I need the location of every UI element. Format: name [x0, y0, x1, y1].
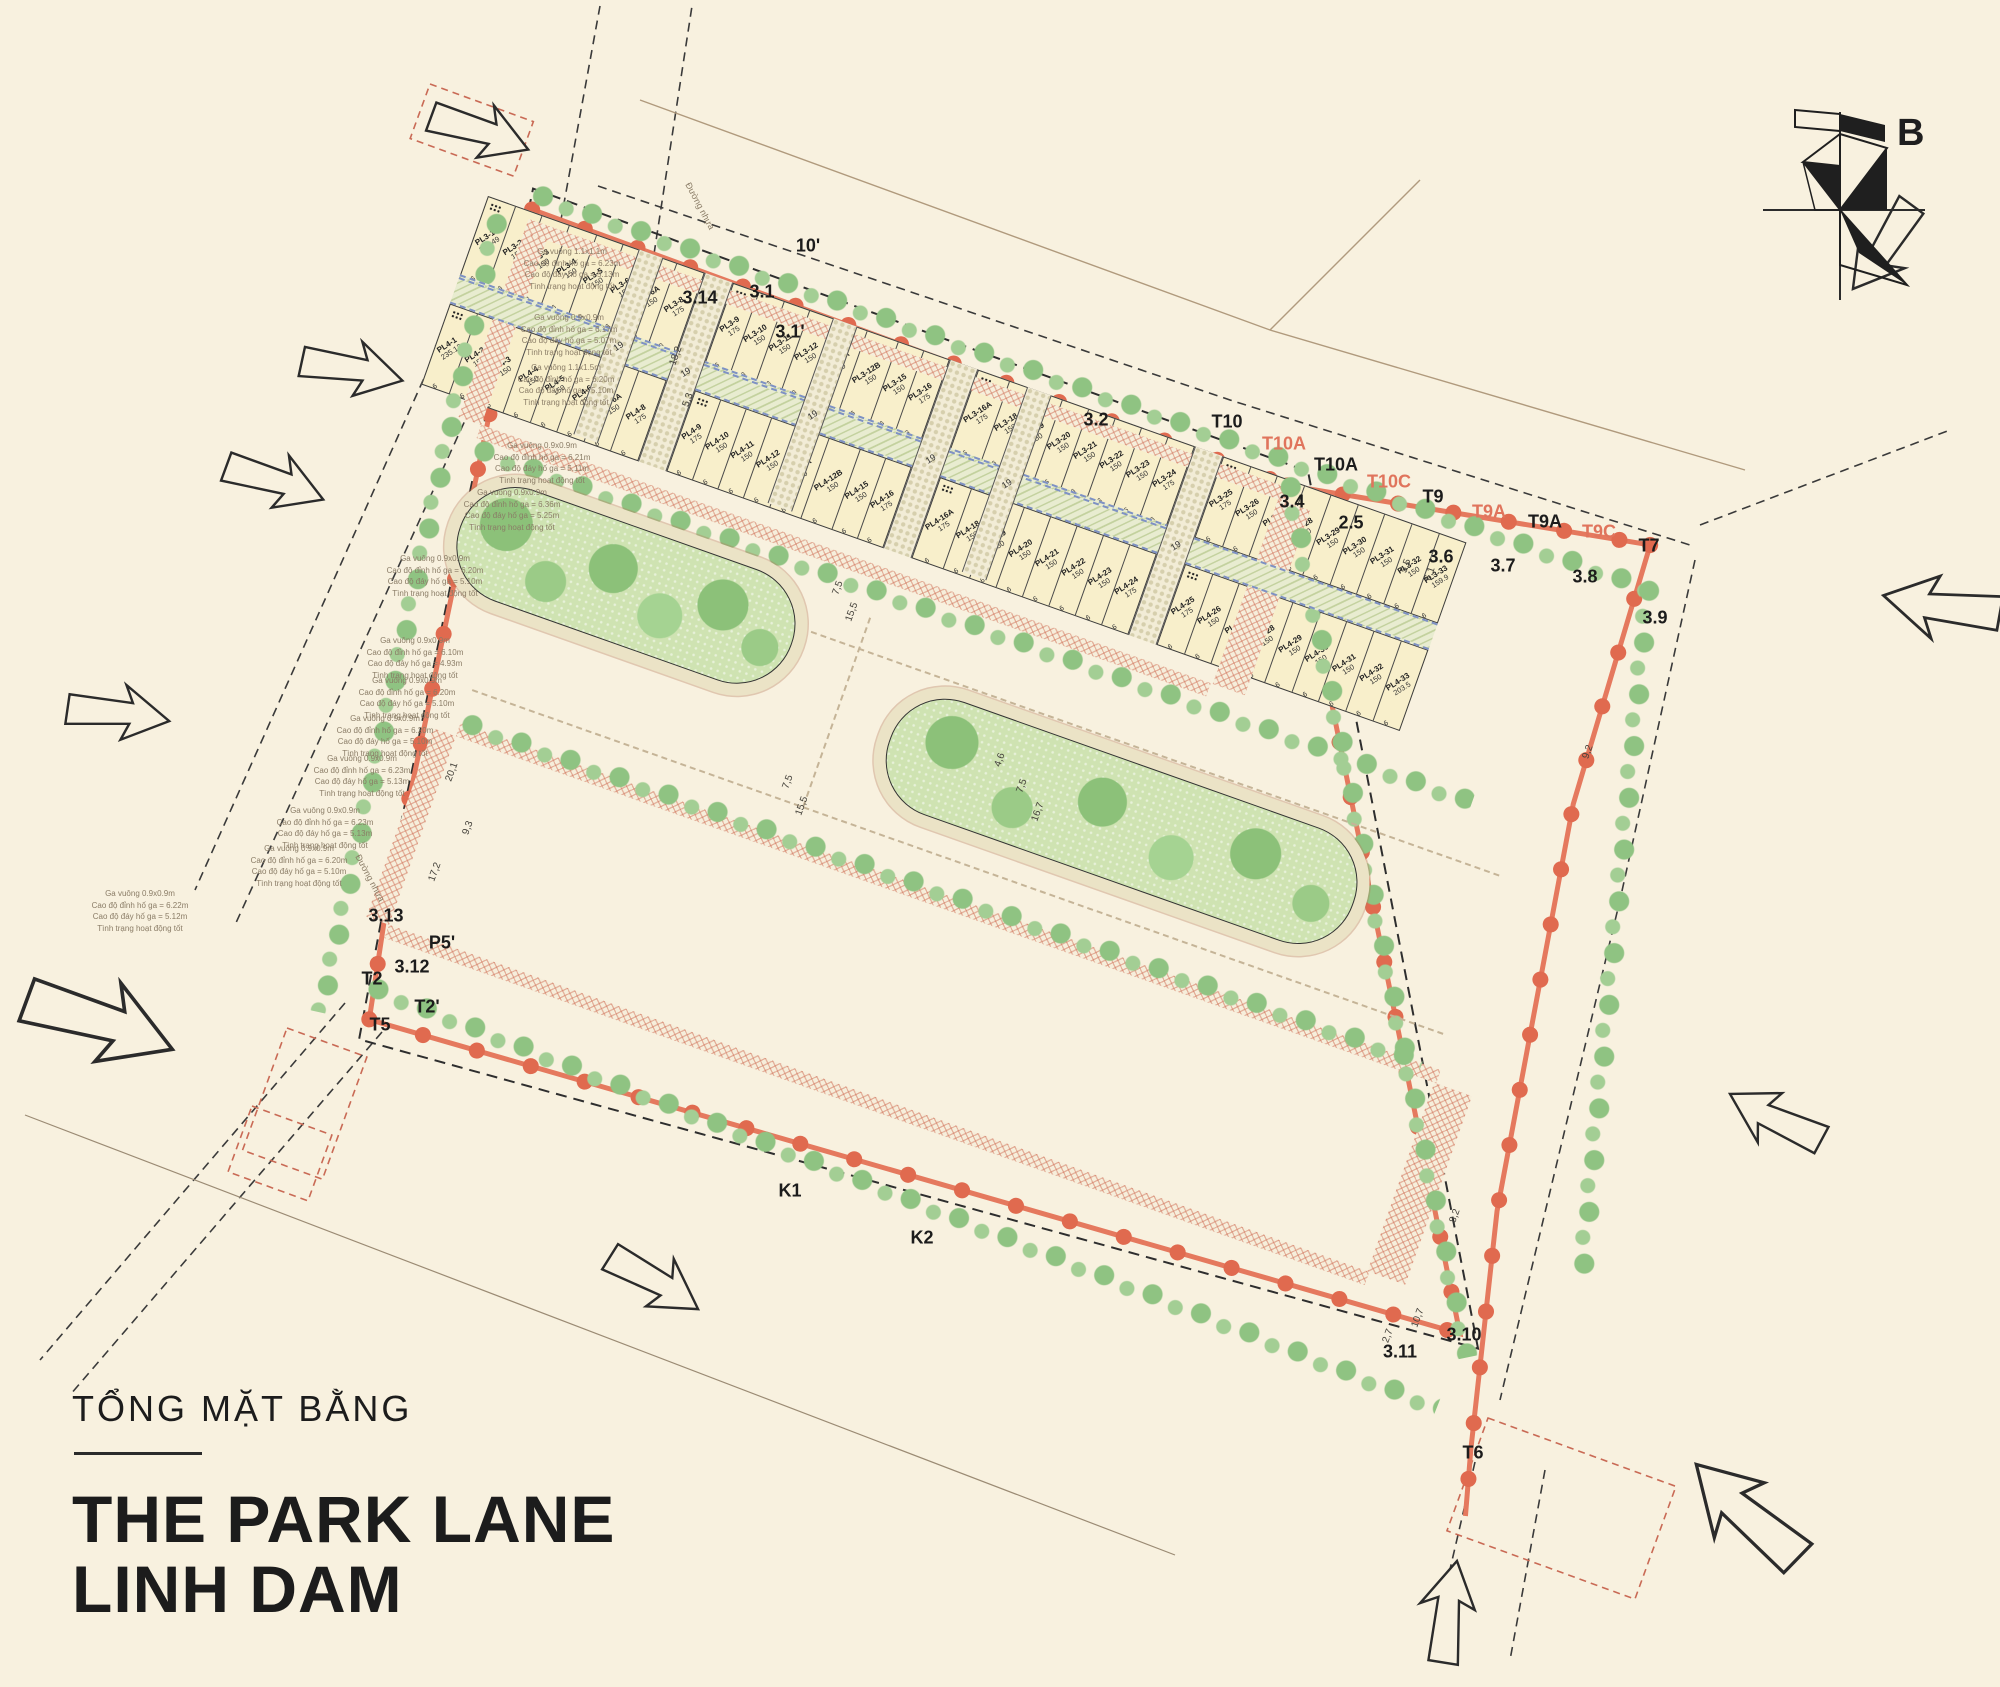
north-compass-icon: B	[1755, 100, 1945, 315]
direction-arrow	[1875, 566, 2000, 650]
alley-width-label: 19	[679, 365, 693, 379]
title-block: TỔNG MẶT BẰNG THE PARK LANE LINH DAM	[72, 1388, 615, 1625]
alley-width-label: 19	[611, 339, 625, 353]
title-rule	[74, 1452, 202, 1455]
project-title-line1: THE PARK LANE	[72, 1485, 615, 1555]
compass-label: B	[1897, 112, 1924, 154]
alley-width-label: 19	[1169, 539, 1183, 553]
alley-width-label: 19	[806, 408, 820, 422]
direction-arrow	[1411, 1555, 1482, 1670]
alley-width-label: 19	[924, 452, 938, 466]
plan-subtitle: TỔNG MẶT BẰNG	[72, 1388, 615, 1430]
site-plan-page: PL1-1224.256PL1-21506PL1-31506PL1-41506P…	[0, 0, 2000, 1687]
direction-arrow	[61, 677, 175, 747]
project-title-line2: LINH DAM	[72, 1555, 615, 1625]
alley-width-label: 19	[1000, 477, 1014, 491]
